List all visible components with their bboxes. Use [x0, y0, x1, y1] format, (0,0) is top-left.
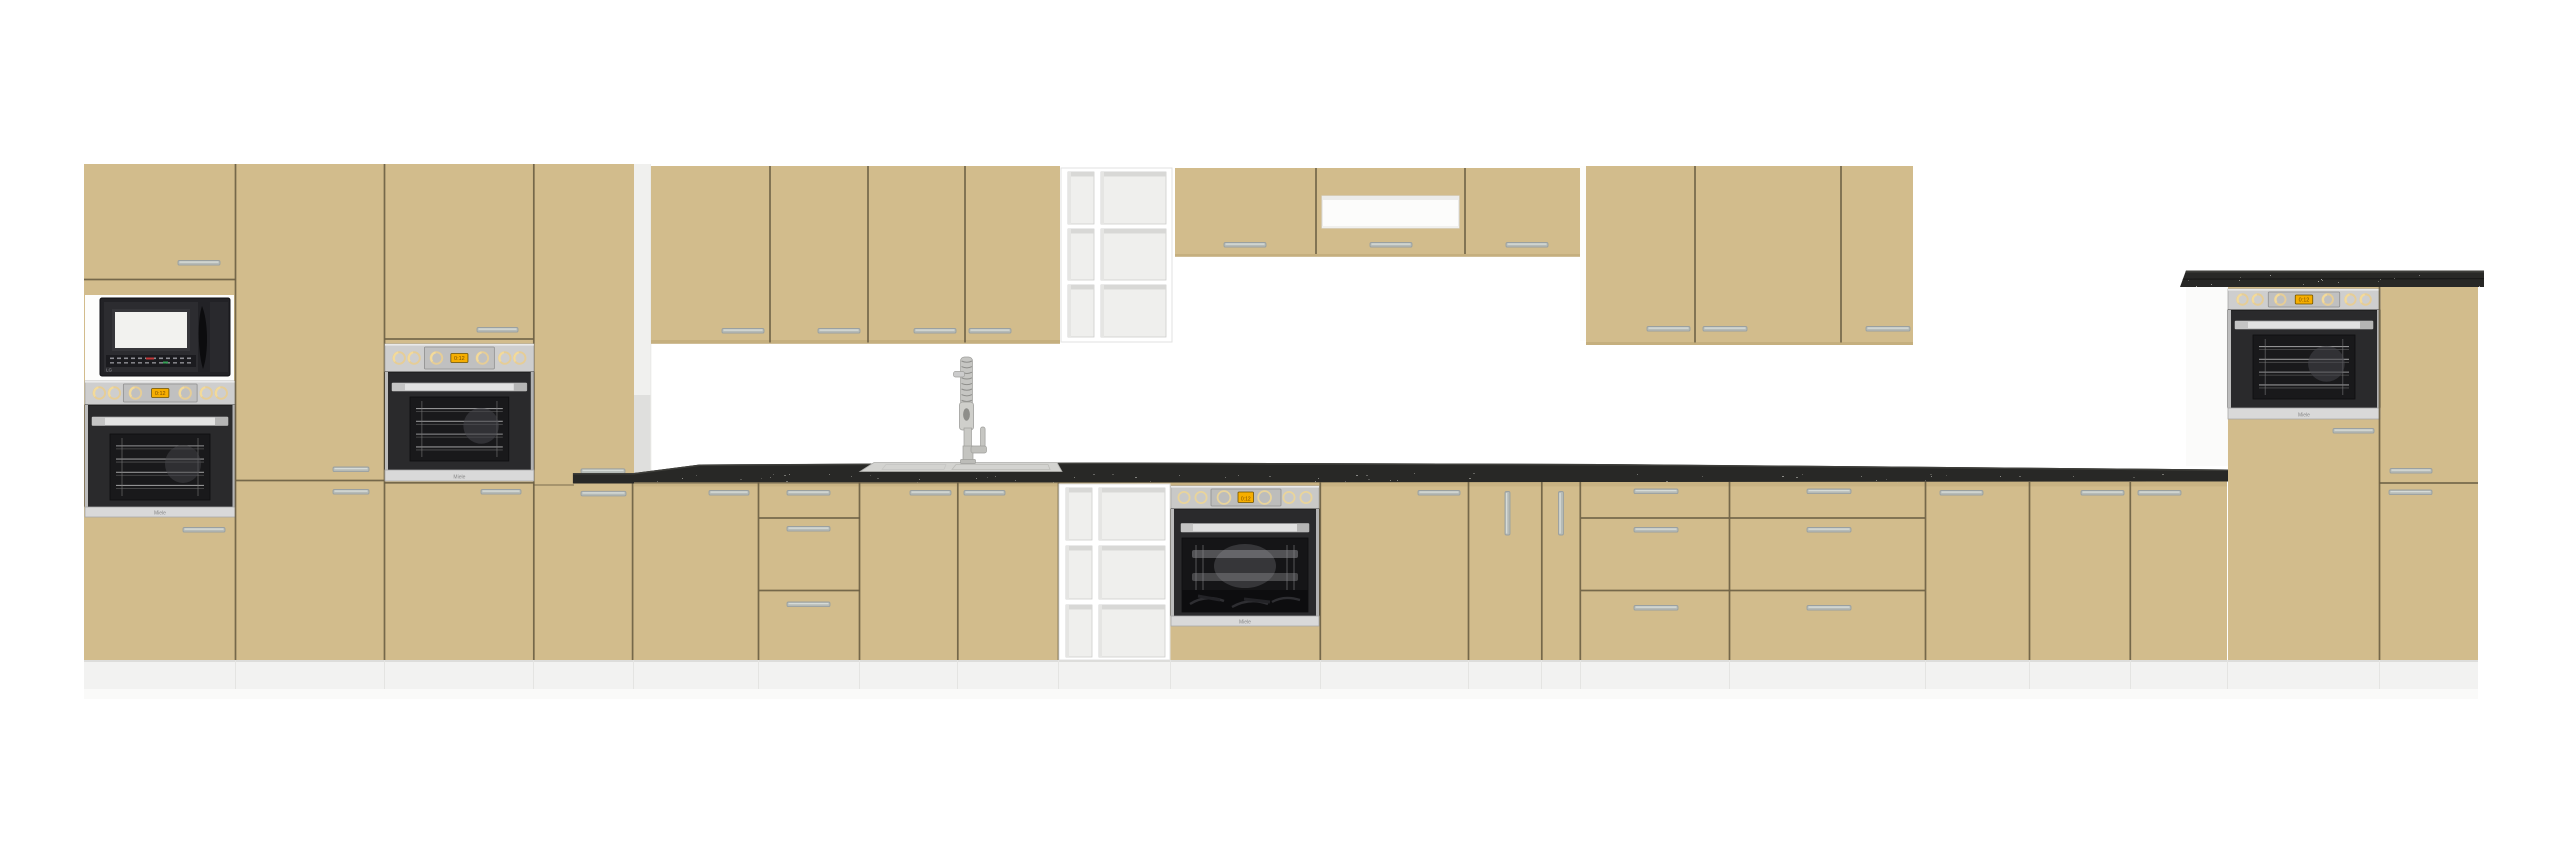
- svg-text:0:12: 0:12: [1241, 497, 1251, 503]
- svg-text:LG: LG: [106, 368, 113, 373]
- svg-text:Miele: Miele: [154, 511, 166, 517]
- svg-text:0:12: 0:12: [454, 356, 465, 362]
- svg-text:Miele: Miele: [2298, 413, 2310, 419]
- svg-text:0:12: 0:12: [2299, 298, 2310, 304]
- svg-text:Miele: Miele: [453, 475, 465, 481]
- svg-text:Miele: Miele: [1239, 620, 1251, 626]
- svg-text:0:12: 0:12: [155, 391, 166, 397]
